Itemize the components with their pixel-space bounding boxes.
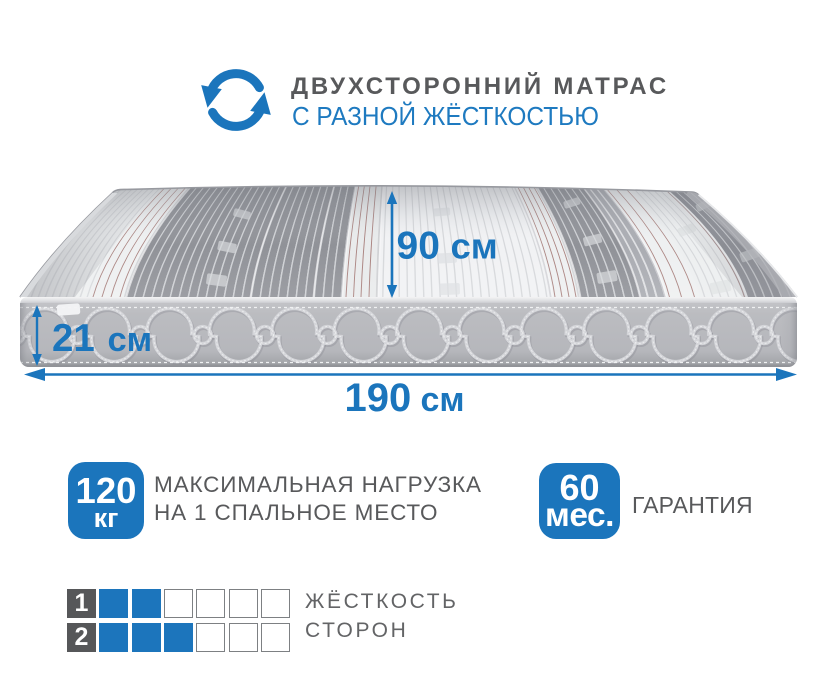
svg-text:190см: 190см xyxy=(345,376,465,420)
